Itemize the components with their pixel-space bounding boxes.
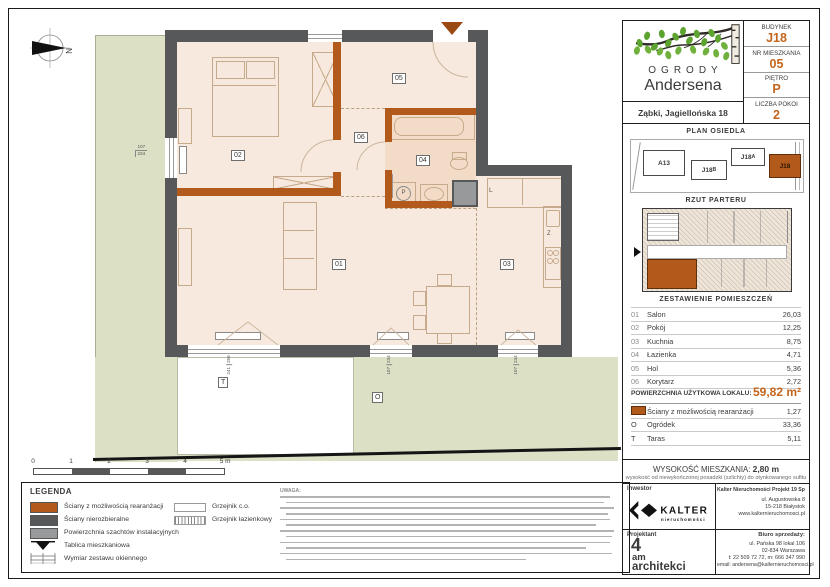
table-row: 02Pokój12,25	[631, 322, 801, 336]
legend-item-label: Tablica mieszkaniowa	[64, 541, 130, 550]
field-label: LICZBA POKOI	[744, 98, 809, 108]
field-label: BUDYNEK	[744, 21, 809, 31]
extra-row-garden: O Ogródek33,36	[631, 419, 801, 433]
ground-plan-map	[642, 208, 792, 292]
room-label-03: 03	[500, 259, 514, 270]
legend-item-label: Wymiar zestawu okiennego	[64, 554, 147, 563]
scale-bar-segments	[33, 468, 225, 475]
building-j18b: J18B	[691, 160, 727, 180]
apartment-height: WYSOKOŚĆ MIESZKANIA: 2,80 m	[623, 464, 809, 474]
logo-line2: Andersena	[623, 77, 743, 95]
door-swing-arcs	[0, 0, 620, 480]
scale-tick: 2	[107, 458, 111, 465]
mini-entry-arrow-icon	[634, 247, 641, 257]
room-label-04: 04	[416, 155, 430, 166]
legend-title: LEGENDA	[30, 487, 72, 496]
window-dim-legend-icon	[29, 553, 57, 565]
panel-rule	[623, 459, 809, 460]
scale-tick: 1	[69, 458, 73, 465]
field-value: J18	[744, 31, 809, 45]
radiator-bathroom-icon	[174, 516, 206, 525]
room-label-06: 06	[354, 132, 368, 143]
sales-phone: t: 22 509 72 72, m: 666 347 990	[717, 555, 805, 561]
window-dim: 107234	[386, 354, 392, 376]
mini-unit-highlighted	[647, 259, 697, 289]
legend-swatch-gray	[30, 528, 58, 539]
table-row: 04Łazienka4,71	[631, 349, 801, 363]
entrance-marker-icon	[441, 22, 463, 35]
fridge-label: L	[489, 187, 493, 194]
field-liczba-pokoi: LICZBA POKOI 2	[744, 98, 809, 123]
estate-plan-map: A13 J18B J18A J18	[630, 139, 804, 193]
legend-swatch-orange	[30, 502, 58, 513]
scale-tick: 5 m	[220, 458, 231, 465]
scale-tick: 0	[31, 458, 35, 465]
floor-plan-sheet: { "colors":{"accent":"#c4651c","wall_dar…	[0, 0, 830, 587]
fine-print-notes: UWAGA:	[280, 488, 618, 564]
extra-rows: Ściany z możliwością rearanżacji1,27 O O…	[631, 405, 801, 446]
floor-plan: N 01 02 03 04 05 06 T O P L Z 107234 241…	[0, 0, 620, 480]
notes-heading: UWAGA:	[280, 488, 618, 494]
road-line	[632, 142, 640, 190]
table-row: 01Salon26,03	[631, 308, 801, 322]
mini-room-dividers	[699, 259, 789, 287]
svg-text:KALTER: KALTER	[660, 506, 708, 517]
ground-plan-title: RZUT PARTERU	[623, 197, 809, 204]
tree-logo-icon	[625, 21, 741, 69]
orange-swatch	[631, 406, 646, 415]
field-value: P	[744, 82, 809, 96]
investor-label: Inwestor	[627, 486, 652, 492]
table-row: 05Hol5,36	[631, 362, 801, 376]
building-j18a: J18A	[731, 148, 765, 166]
kalter-logo-icon: KALTER nieruchomości	[629, 497, 709, 525]
building-j18-highlighted: J18	[769, 154, 801, 178]
room-label-05: 05	[392, 73, 406, 84]
grid-divider-h	[623, 529, 809, 530]
room-label-01: 01	[332, 259, 346, 270]
mini-room-dividers	[681, 211, 789, 243]
scale-bar: 0 1 2 3 4 5 m	[33, 458, 225, 476]
field-nr-mieszkania: NR MIESZKANIA 05	[744, 47, 809, 73]
project-address: Ząbki, Jagiellońska 18	[623, 101, 743, 124]
sales-address2: 02-834 Warszawa	[717, 548, 805, 554]
height-value: 2,80 m	[753, 464, 779, 474]
estate-plan-title: PLAN OSIEDLA	[623, 128, 809, 135]
company-website[interactable]: www.kalternieruchomosci.pl	[717, 511, 805, 517]
field-pietro: PIĘTRO P	[744, 72, 809, 98]
field-value: 2	[744, 108, 809, 122]
total-area-label: POWIERZCHNIA UŻYTKOWA LOKALU:	[631, 390, 751, 397]
mini-staircase	[647, 213, 679, 241]
window-dim: 107234	[135, 144, 147, 157]
entrance-marker-legend-icon	[31, 541, 55, 551]
mini-corridor	[647, 245, 787, 259]
info-panel: OGRODY Andersena Ząbki, Jagiellońska 18 …	[622, 20, 810, 575]
legend-item-label: Ściany z możliwością rearanżacji	[64, 502, 163, 511]
garden-label: O	[372, 392, 383, 403]
radiator-co-icon	[174, 503, 206, 512]
window-dim: 241256	[226, 354, 232, 376]
legend-swatch-dark	[30, 515, 58, 526]
field-label: NR MIESZKANIA	[744, 47, 809, 57]
info-grid: Inwestor KALTER nieruchomości Kalter Nie…	[623, 483, 809, 575]
logo-line1: OGRODY	[623, 65, 743, 76]
field-value: 05	[744, 57, 809, 71]
legend-item-label: Powierzchnia szachtów instalacyjnych	[64, 528, 179, 537]
sink-label: Z	[547, 231, 551, 237]
total-area-row: POWIERZCHNIA UŻYTKOWA LOKALU: 59,82 m²	[631, 383, 801, 404]
rooms-table-title: ZESTAWIENIE POMIESZCZEŃ	[623, 296, 809, 303]
window-dim: 107234	[513, 354, 519, 376]
sales-email[interactable]: email: andersena@kalternieruchomosci.pl	[717, 562, 805, 568]
sales-address1: ul. Pańska 98 lokal 106	[717, 541, 805, 547]
total-area-value: 59,82 m²	[753, 385, 801, 399]
table-row: 03Kuchnia8,75	[631, 335, 801, 349]
washer-label: P	[396, 186, 411, 201]
legend-box: LEGENDA Ściany z możliwością rearanżacji…	[21, 482, 630, 573]
terrace-label: T	[218, 377, 228, 388]
company-name: Kalter Nieruchomości Projekt 19 Sp. z o.…	[717, 487, 805, 493]
svg-text:nieruchomości: nieruchomości	[661, 517, 706, 522]
panel-rule	[623, 123, 809, 124]
scale-tick: 3	[145, 458, 149, 465]
company-address1: ul. Augustowska 8	[717, 497, 805, 503]
room-label-02: 02	[231, 150, 245, 161]
field-label: PIĘTRO	[744, 72, 809, 82]
extra-row-walls: Ściany z możliwością rearanżacji1,27	[631, 405, 801, 419]
legend-item-label: Grzejnik łazienkowy	[212, 515, 272, 524]
north-label: N	[64, 48, 73, 54]
designer-line3: architekci	[632, 561, 686, 573]
field-budynek: BUDYNEK J18	[744, 21, 809, 47]
height-note: wysokość od niewykończonej posadzki (szl…	[623, 475, 809, 481]
scale-tick: 4	[183, 458, 187, 465]
building-a13: A13	[643, 150, 685, 176]
sales-office-label: Biuro sprzedaży:	[717, 532, 805, 538]
legend-item-label: Grzejnik c.o.	[212, 502, 250, 511]
logo-block: OGRODY Andersena	[623, 21, 743, 101]
designer-line1: 4	[631, 537, 641, 553]
rooms-table: 01Salon26,03 02Pokój12,25 03Kuchnia8,75 …	[631, 307, 801, 389]
height-label: WYSOKOŚĆ MIESZKANIA:	[653, 465, 750, 474]
compass-icon: N	[24, 22, 76, 74]
extra-row-terrace: T Taras5,11	[631, 432, 801, 446]
company-address2: 15-218 Białystok	[717, 504, 805, 510]
legend-item-label: Ściany nierozbieralne	[64, 515, 129, 524]
